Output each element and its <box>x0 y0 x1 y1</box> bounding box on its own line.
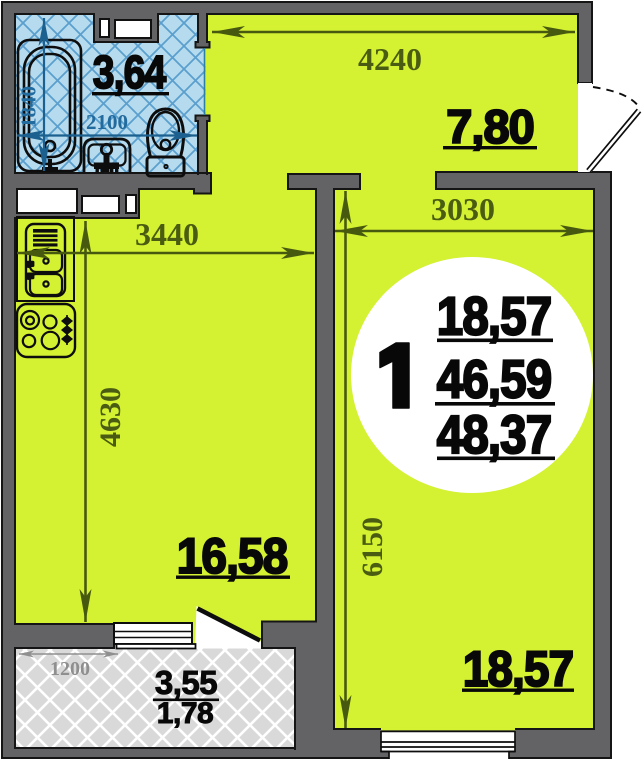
svg-text:2100: 2100 <box>86 110 128 134</box>
svg-text:4630: 4630 <box>94 387 127 447</box>
svg-text:6150: 6150 <box>356 517 389 577</box>
svg-text:7,80: 7,80 <box>446 100 533 153</box>
svg-text:1200: 1200 <box>50 658 90 680</box>
svg-text:3030: 3030 <box>431 191 495 227</box>
svg-text:48,37: 48,37 <box>437 404 552 465</box>
svg-text:3,55: 3,55 <box>155 664 217 701</box>
svg-text:1840: 1840 <box>17 86 41 128</box>
svg-text:46,59: 46,59 <box>437 349 552 410</box>
svg-text:4240: 4240 <box>358 41 422 77</box>
svg-text:3440: 3440 <box>135 216 199 252</box>
svg-text:3,64: 3,64 <box>93 47 167 99</box>
svg-text:18,57: 18,57 <box>437 286 552 347</box>
svg-text:1,78: 1,78 <box>157 697 213 730</box>
